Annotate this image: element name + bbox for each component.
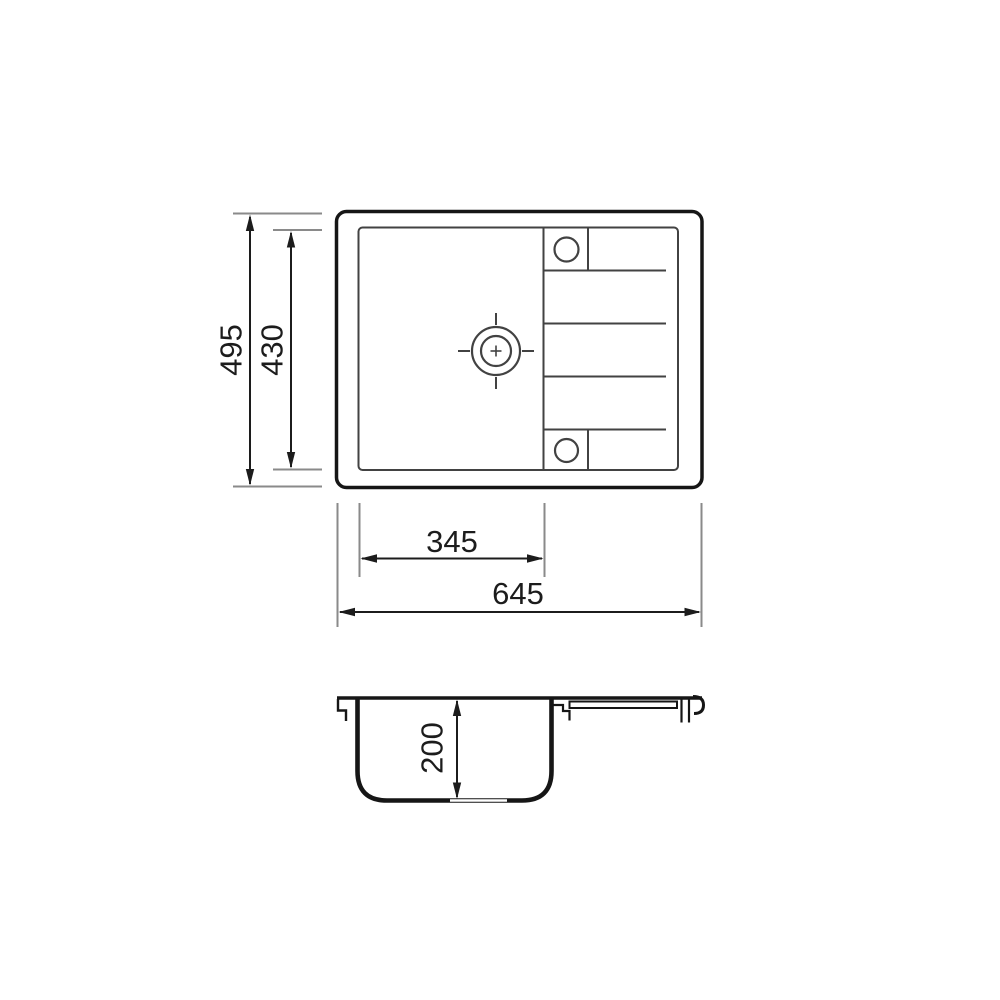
dim-label-inner-height: 430 [255, 324, 290, 376]
dim-label-overall-height: 495 [214, 324, 249, 376]
faucet-hole-symbol [458, 313, 534, 389]
sink-inner-edge [359, 228, 679, 471]
arrow-430-top [287, 231, 295, 248]
sink-dimension-drawing: 495 430 345 645 200 [0, 0, 1000, 1000]
arrow-345-left [361, 554, 378, 562]
arrow-345-right [527, 554, 544, 562]
extension-lines [233, 214, 702, 628]
arrow-200-bottom [453, 783, 461, 800]
dimension-labels: 495 430 345 645 200 [214, 324, 544, 774]
arrow-645-left [339, 608, 356, 616]
dimension-lines [250, 217, 699, 797]
drawing-canvas: 495 430 345 645 200 [0, 0, 1000, 1000]
drainer-ledge-section [570, 702, 678, 709]
dimension-arrowheads [246, 215, 701, 800]
arrow-645-right [685, 608, 702, 616]
dim-label-bowl-width: 345 [426, 524, 478, 559]
side-view [337, 697, 704, 801]
dim-label-bowl-depth: 200 [415, 722, 450, 774]
arrow-495-bottom [246, 469, 254, 486]
overflow-hole-top [555, 238, 579, 262]
dim-label-overall-width: 645 [492, 576, 544, 611]
arrow-200-top [453, 700, 461, 717]
left-mounting-clip [338, 699, 346, 721]
right-mounting-clip [552, 705, 570, 721]
top-view [337, 212, 703, 488]
arrow-495-top [246, 215, 254, 232]
overflow-hole-bottom [555, 439, 578, 462]
arrow-430-bottom [287, 452, 295, 469]
